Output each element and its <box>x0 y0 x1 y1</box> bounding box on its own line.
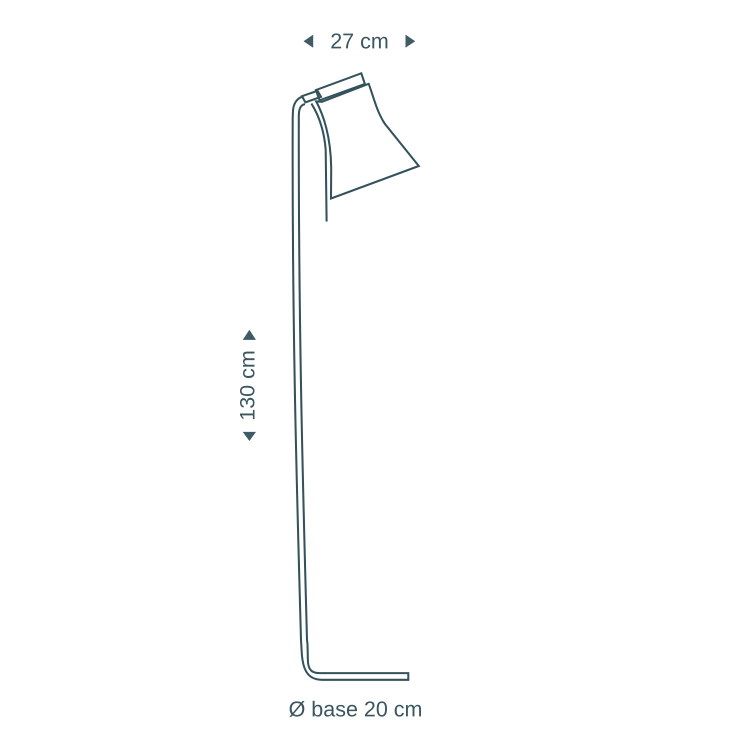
svg-text:Ø base 20 cm: Ø base 20 cm <box>289 697 423 721</box>
svg-text:130 cm: 130 cm <box>235 350 259 421</box>
svg-text:27 cm: 27 cm <box>330 29 389 53</box>
